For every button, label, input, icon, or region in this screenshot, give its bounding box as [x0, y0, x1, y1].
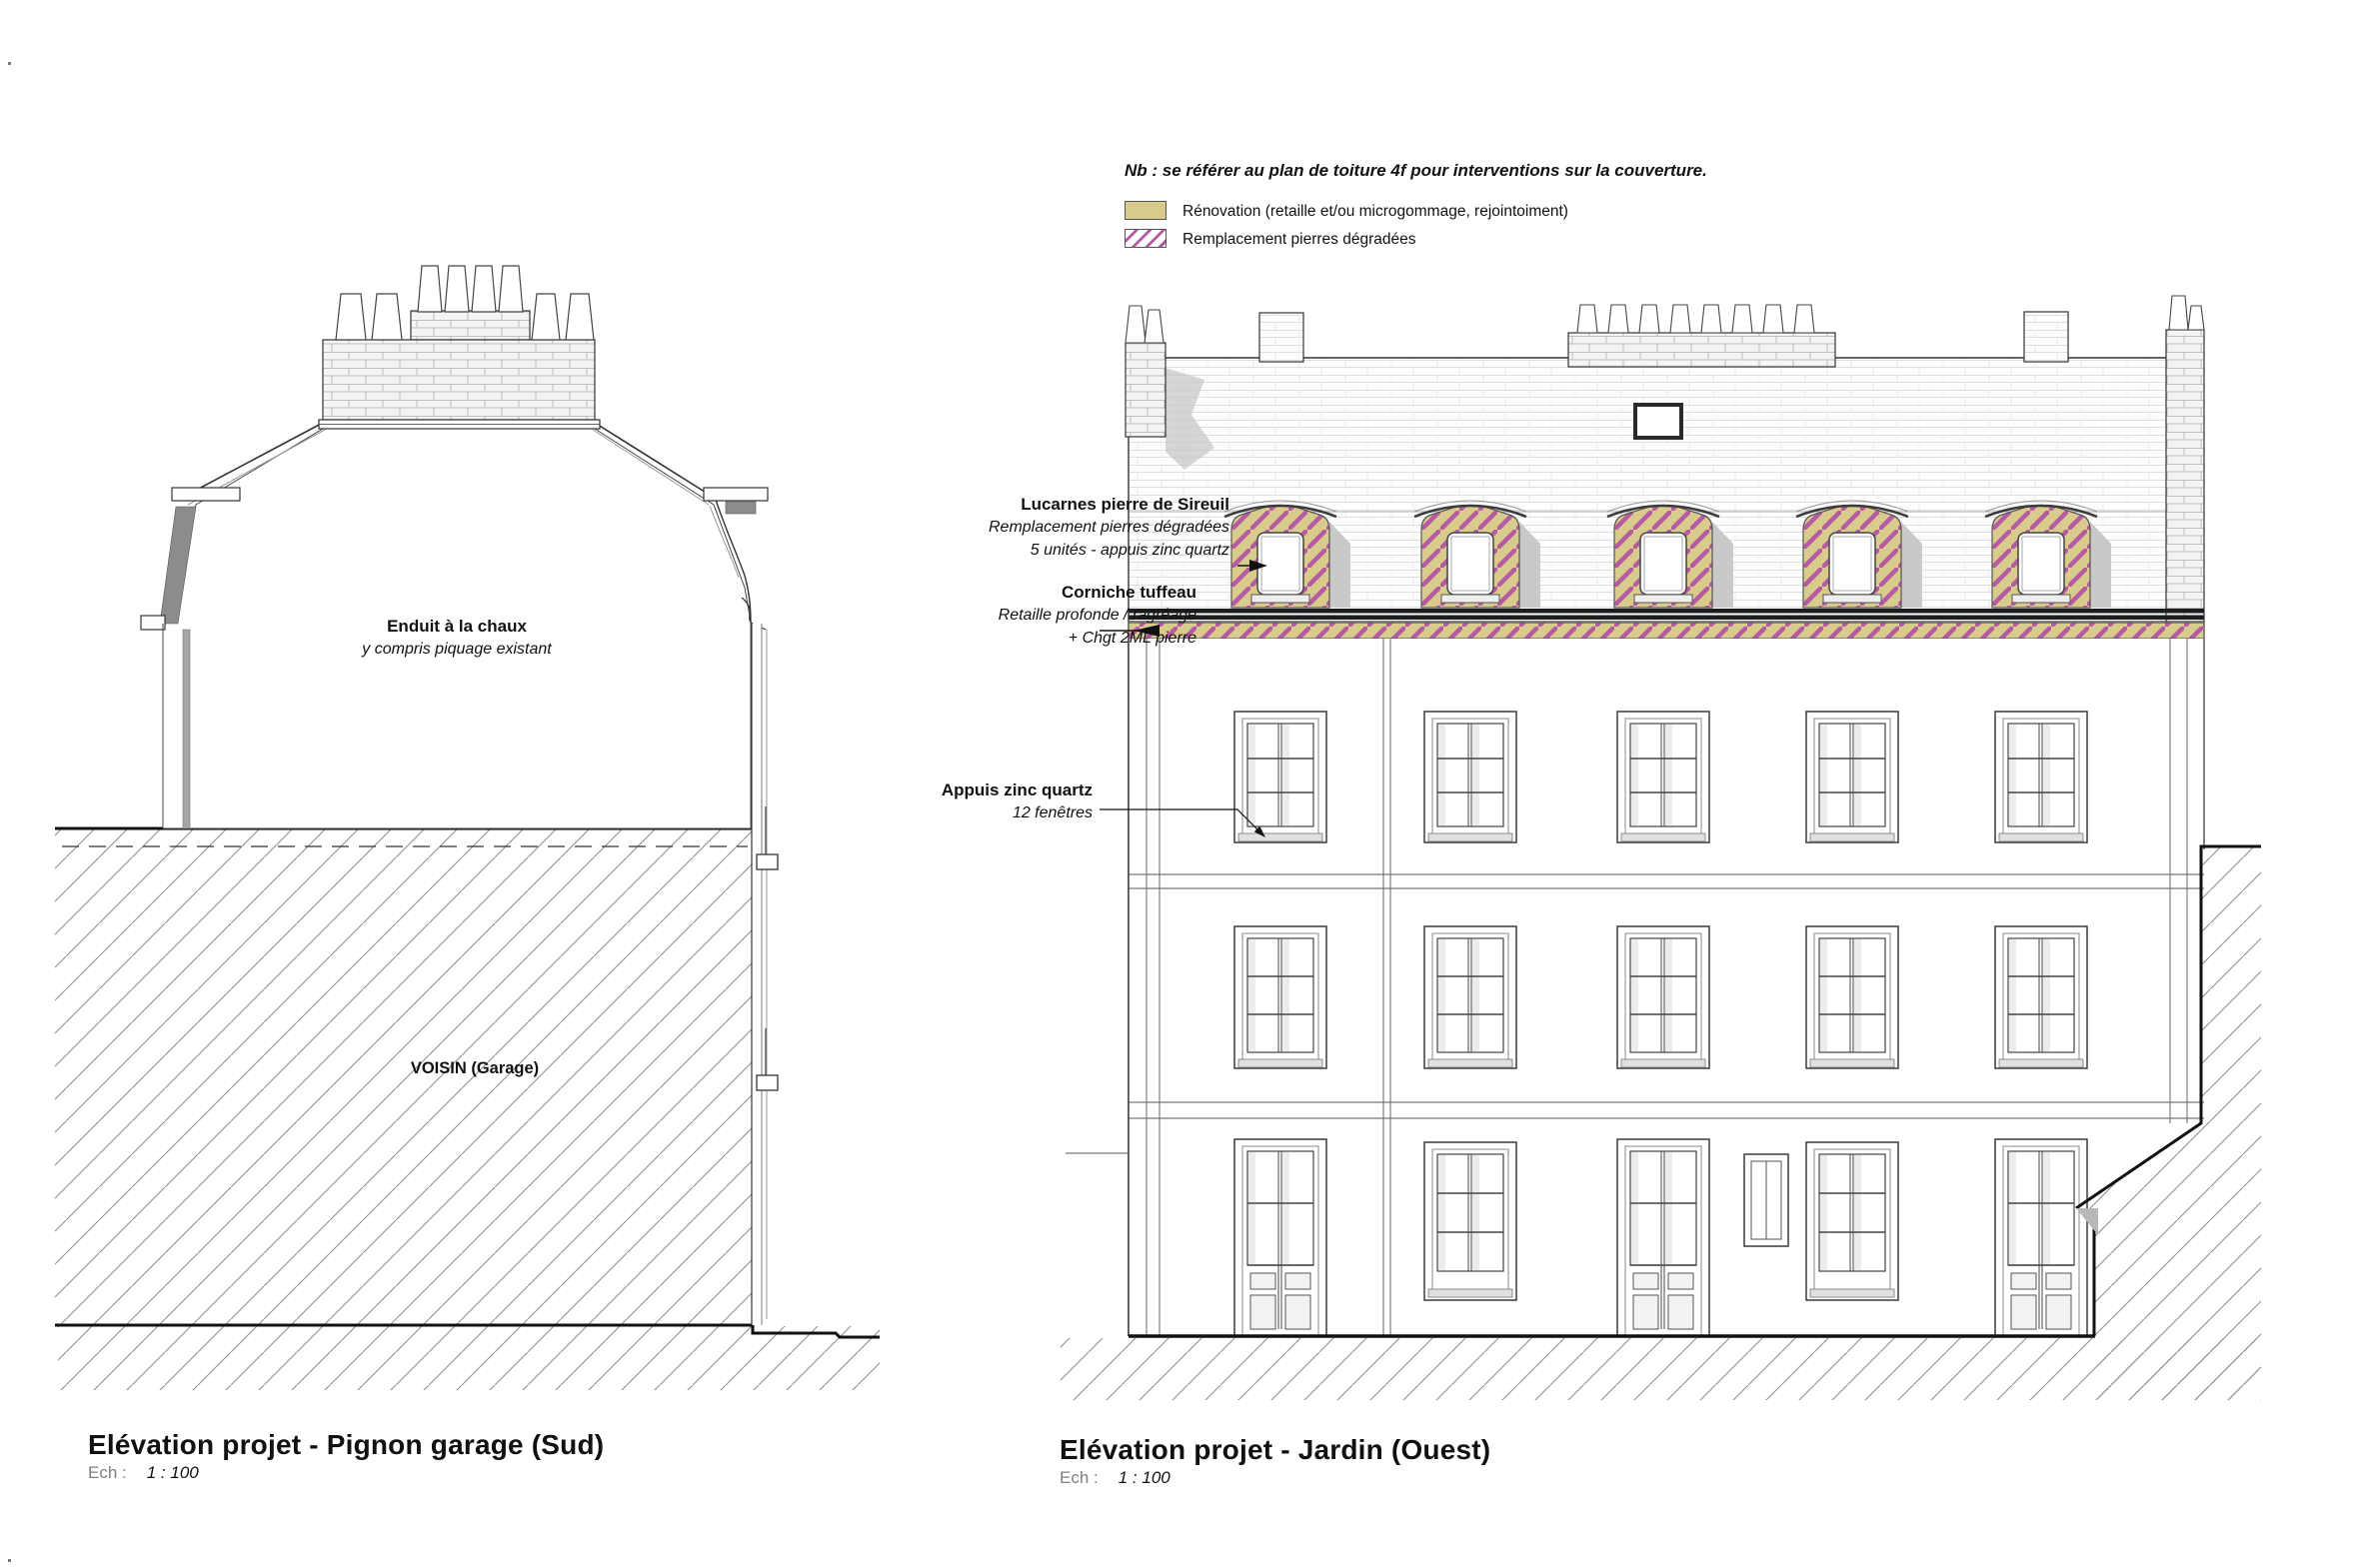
small-window — [1744, 1154, 1788, 1246]
left-scale-value: 1 : 100 — [147, 1463, 199, 1482]
legend-swatch-renovation — [1125, 201, 1167, 220]
left-scale-label: Ech : — [88, 1463, 127, 1482]
left-drawing-scale: Ech :1 : 100 — [88, 1462, 199, 1485]
legend-note: Nb : se référer au plan de toiture 4f po… — [1125, 160, 1707, 183]
annotation-appuis: Appuis zinc quartz 12 fenêtres — [942, 779, 1093, 825]
right-scale-label: Ech : — [1060, 1468, 1099, 1487]
annotation-corniche-line3: + Chgt 2ML pierre — [999, 628, 1196, 651]
annotation-corniche-line2: Retaille profonde / ragréage — [999, 605, 1196, 628]
legend-label-remplacement: Remplacement pierres dégradées — [1182, 230, 1415, 251]
architectural-elevation-sheet: Nb : se référer au plan de toiture 4f po… — [0, 0, 2361, 1568]
right-drawing-scale: Ech :1 : 100 — [1060, 1467, 1171, 1490]
right-elevation-drawing — [1061, 296, 2261, 1400]
annotation-enduit-title: Enduit à la chaux — [277, 615, 637, 639]
right-scale-value: 1 : 100 — [1119, 1468, 1171, 1487]
legend-label-renovation: Rénovation (retaille et/ou microgommage,… — [1182, 202, 1568, 223]
annotation-appuis-title: Appuis zinc quartz — [942, 779, 1093, 802]
annotation-enduit-sub: y compris piquage existant — [277, 639, 637, 662]
left-elevation-drawing — [55, 266, 880, 1390]
annotation-appuis-line2: 12 fenêtres — [942, 802, 1093, 825]
right-drawing-title: Elévation projet - Jardin (Ouest) — [1060, 1431, 1490, 1469]
annotation-enduit: Enduit à la chaux y compris piquage exis… — [277, 615, 637, 662]
annotation-lucarnes-line2: Remplacement pierres dégradées — [989, 517, 1229, 540]
chimney-pots-central — [1577, 305, 1814, 333]
annotation-lucarnes: Lucarnes pierre de Sireuil Remplacement … — [989, 493, 1229, 563]
annotation-corniche-title: Corniche tuffeau — [999, 581, 1196, 605]
legend-swatch-remplacement — [1125, 229, 1167, 248]
annotation-voisin: VOISIN (Garage) — [325, 1057, 625, 1079]
roof-window — [1635, 405, 1681, 438]
cornice-band — [1129, 623, 2204, 639]
registration-dot — [8, 62, 11, 65]
left-drawing-title: Elévation projet - Pignon garage (Sud) — [88, 1426, 604, 1464]
annotation-lucarnes-line3: 5 unités - appuis zinc quartz — [989, 540, 1229, 563]
chimney-pots-right — [2169, 296, 2204, 330]
chimney-pots-roof — [1126, 306, 1164, 343]
annotation-lucarnes-title: Lucarnes pierre de Sireuil — [989, 493, 1229, 517]
registration-dot — [8, 1559, 11, 1562]
drawings-canvas — [0, 0, 2361, 1568]
annotation-corniche: Corniche tuffeau Retaille profonde / rag… — [999, 581, 1196, 651]
